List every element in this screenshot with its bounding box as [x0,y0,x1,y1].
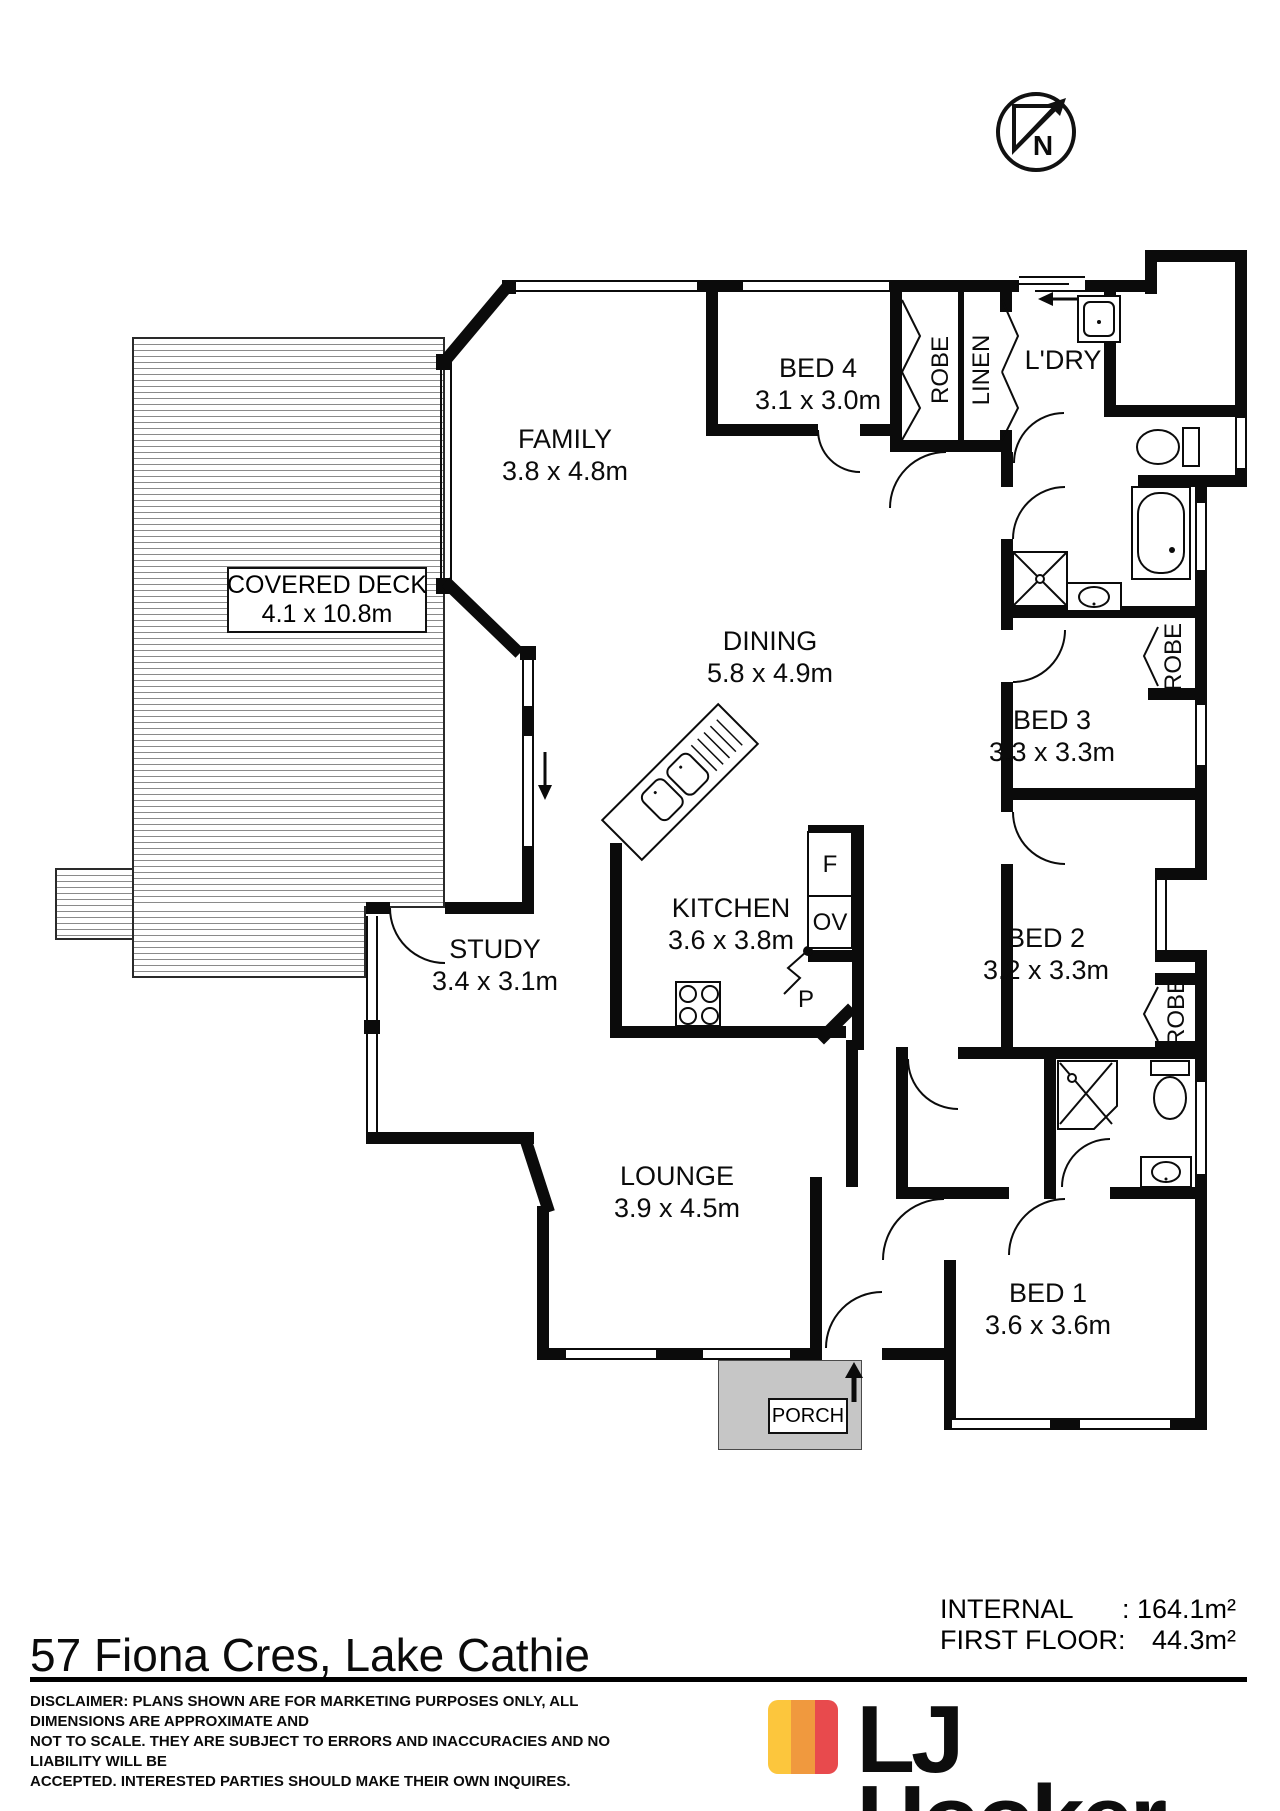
shower-icon [1013,552,1067,606]
room-label-laundry: L'DRY [1025,344,1102,376]
room-label-porch: PORCH [768,1398,848,1434]
vanity-icon [1067,583,1121,611]
room-label-study: STUDY 3.4 x 3.1m [432,933,558,997]
room-label-covered-deck: COVERED DECK 4.1 x 10.8m [227,567,427,633]
room-label-kitchen: KITCHEN 3.6 x 3.8m [668,892,794,956]
room-label-bed3: BED 3 3.3 x 3.3m [989,704,1115,768]
first-floor-area-label: FIRST FLOOR: [940,1625,1126,1656]
room-label-bed2: BED 2 3.2 x 3.3m [983,922,1109,986]
interior-walls [610,292,1207,1418]
room-dims: 3.1 x 3.0m [755,384,881,416]
room-dims: 3.8 x 4.8m [502,455,628,487]
room-dims: 3.4 x 3.1m [432,965,558,997]
room-dims: 3.6 x 3.6m [985,1309,1111,1341]
room-name: LOUNGE [614,1160,740,1192]
ensuite-toilet-icon [1151,1061,1189,1119]
room-dims: 3.9 x 4.5m [614,1192,740,1224]
disclaimer-text: DISCLAIMER: PLANS SHOWN ARE FOR MARKETIN… [30,1692,650,1792]
logo-stripe-yellow [768,1700,791,1774]
bathtub-icon [1132,487,1190,579]
logo-stripe-orange [791,1700,814,1774]
ljhooker-logo-text: LJ Hooker [856,1700,1280,1811]
laundry-tub-icon [1078,296,1120,342]
floorplan-page: N FAMILY 3.8 x 4.8m BED 4 3.1 x 3.0m DIN… [0,0,1280,1811]
room-name: FAMILY [502,423,628,455]
room-name: BED 2 [983,922,1109,954]
room-dims: 3.3 x 3.3m [989,736,1115,768]
room-name: BED 1 [985,1277,1111,1309]
pantry-label: P [798,986,814,1014]
cooktop-icon [676,982,720,1026]
room-label-family: FAMILY 3.8 x 4.8m [502,423,628,487]
ljhooker-logo: LJ Hooker [768,1700,1280,1811]
internal-area-value: : 164.1m² [1122,1594,1236,1625]
floorplan-drawing [0,0,1280,1811]
first-floor-area-row: FIRST FLOOR: 44.3m² [940,1625,1236,1656]
robe-label-bed3: ROBE [1160,623,1188,691]
room-name: DINING [707,625,833,657]
room-name: BED 3 [989,704,1115,736]
room-dims: 5.8 x 4.9m [707,657,833,689]
room-label-bed1: BED 1 3.6 x 3.6m [985,1277,1111,1341]
room-dims: 4.1 x 10.8m [262,600,393,629]
footer-divider [30,1677,1247,1682]
internal-area-label: INTERNAL [940,1594,1074,1625]
ensuite-vanity-icon [1141,1157,1191,1187]
disclaimer-line: NOT TO SCALE. THEY ARE SUBJECT TO ERRORS… [30,1732,650,1772]
property-address: 57 Fiona Cres, Lake Cathie [30,1628,590,1682]
room-label-bed4: BED 4 3.1 x 3.0m [755,352,881,416]
compass-north-label: N [1033,130,1053,162]
toilet-icon [1137,428,1199,466]
disclaimer-line: ACCEPTED. INTERESTED PARTIES SHOULD MAKE… [30,1772,650,1792]
room-name: KITCHEN [668,892,794,924]
room-name: L'DRY [1025,344,1102,376]
windows [366,276,1247,1430]
room-dims: 3.6 x 3.8m [668,924,794,956]
room-label-lounge: LOUNGE 3.9 x 4.5m [614,1160,740,1224]
internal-area-row: INTERNAL : 164.1m² [940,1594,1236,1625]
room-dims: 3.2 x 3.3m [983,954,1109,986]
kitchen-sink-icon [602,704,758,860]
oven-label: OV [813,909,848,937]
robe-label-bed2: ROBE [1163,978,1191,1046]
floor-areas: INTERNAL : 164.1m² FIRST FLOOR: 44.3m² [940,1594,1236,1656]
robe-label-bed4: ROBE [927,336,955,404]
disclaimer-line: DISCLAIMER: PLANS SHOWN ARE FOR MARKETIN… [30,1692,650,1732]
room-label-dining: DINING 5.8 x 4.9m [707,625,833,689]
room-name: PORCH [772,1405,844,1428]
fridge-label: F [823,851,838,879]
logo-stripe-red [815,1700,838,1774]
room-name: BED 4 [755,352,881,384]
room-name: STUDY [432,933,558,965]
ensuite-shower-icon [1058,1061,1117,1129]
linen-label: LINEN [968,335,996,406]
room-name: COVERED DECK [227,571,427,600]
ljhooker-logo-mark-icon [768,1700,838,1774]
first-floor-area-value: 44.3m² [1152,1625,1236,1656]
